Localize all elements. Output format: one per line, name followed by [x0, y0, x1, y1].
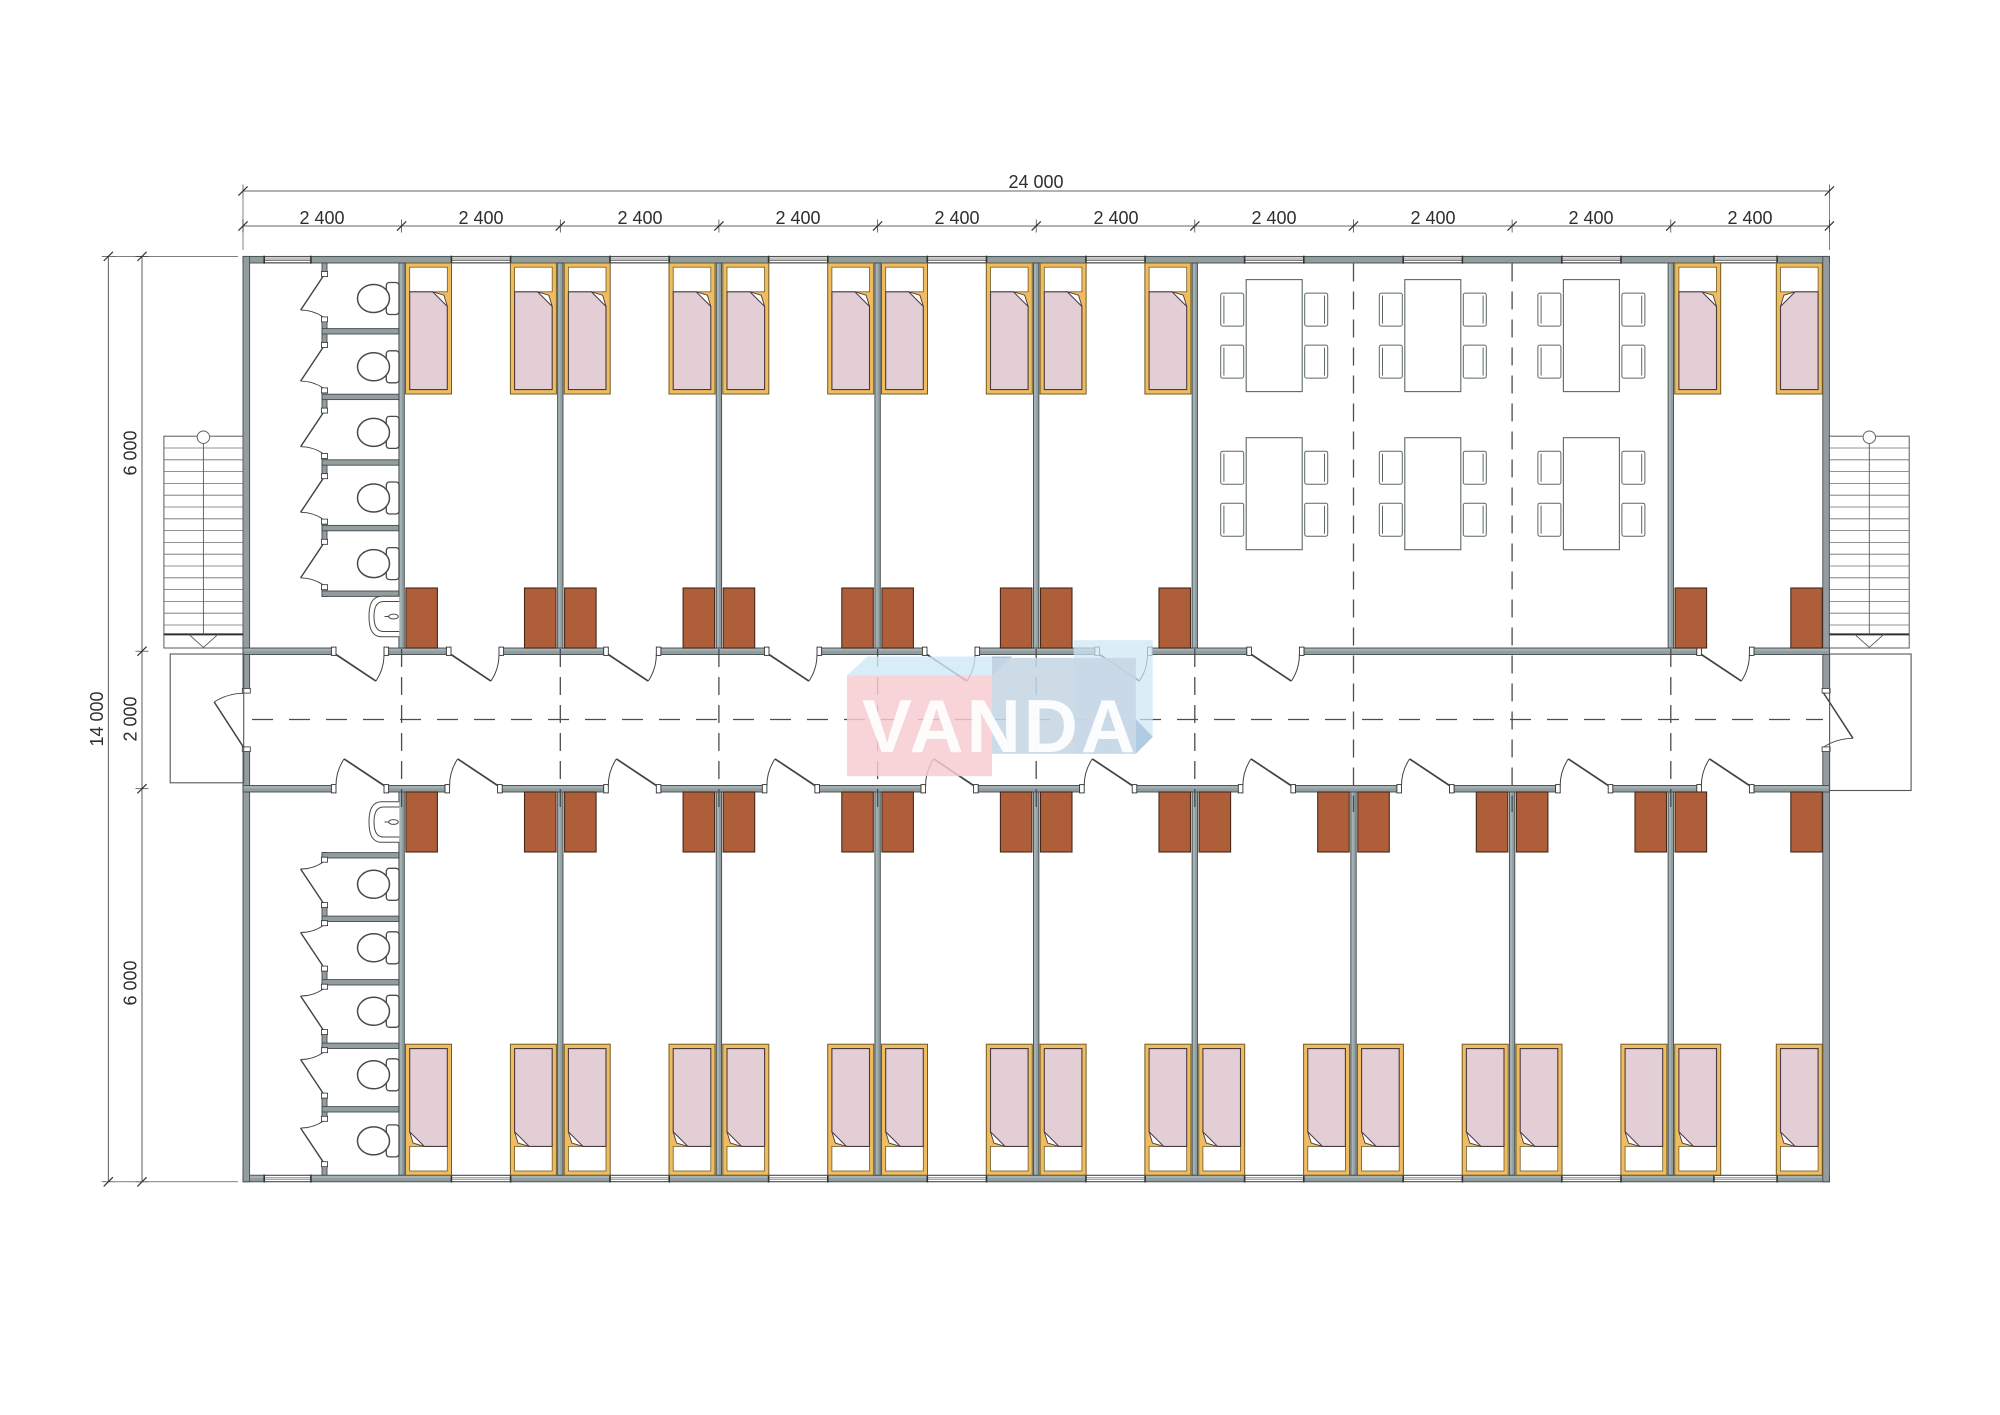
svg-text:2 400: 2 400	[617, 208, 662, 228]
svg-text:2 400: 2 400	[1410, 208, 1455, 228]
svg-text:VANDA: VANDA	[862, 684, 1138, 768]
svg-text:2 400: 2 400	[934, 208, 979, 228]
svg-text:2 400: 2 400	[1568, 208, 1613, 228]
svg-text:2 400: 2 400	[299, 208, 344, 228]
svg-text:24 000: 24 000	[1008, 172, 1063, 192]
svg-text:2 400: 2 400	[1727, 208, 1772, 228]
svg-text:2 000: 2 000	[121, 696, 141, 741]
svg-text:6 000: 6 000	[121, 960, 141, 1005]
svg-text:6 000: 6 000	[121, 430, 141, 475]
svg-text:2 400: 2 400	[1093, 208, 1138, 228]
svg-text:2 400: 2 400	[458, 208, 503, 228]
svg-text:2 400: 2 400	[775, 208, 820, 228]
svg-text:2 400: 2 400	[1251, 208, 1296, 228]
svg-text:14 000: 14 000	[87, 691, 107, 746]
